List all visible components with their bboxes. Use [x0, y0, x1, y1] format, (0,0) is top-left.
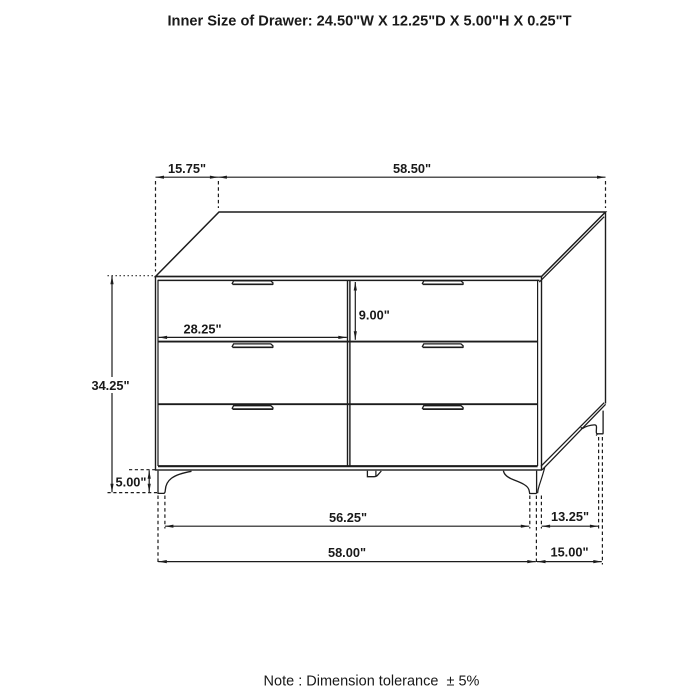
svg-text:58.50": 58.50"	[393, 161, 431, 176]
svg-text:5.00": 5.00"	[116, 475, 147, 490]
svg-text:Note : Dimension tolerance ±: Note : Dimension tolerance ± 5%	[264, 674, 480, 690]
svg-text:13.25": 13.25"	[551, 509, 589, 524]
svg-text:Inner Size of Drawer: 24.50"W: Inner Size of Drawer: 24.50"W X 12.25"D …	[167, 14, 571, 30]
svg-text:15.00": 15.00"	[550, 544, 588, 559]
svg-text:15.75": 15.75"	[168, 161, 206, 176]
svg-text:9.00": 9.00"	[359, 307, 390, 322]
svg-text:56.25": 56.25"	[329, 510, 367, 525]
svg-text:28.25": 28.25"	[183, 321, 221, 336]
svg-text:58.00": 58.00"	[328, 545, 366, 560]
svg-text:34.25": 34.25"	[91, 378, 129, 393]
